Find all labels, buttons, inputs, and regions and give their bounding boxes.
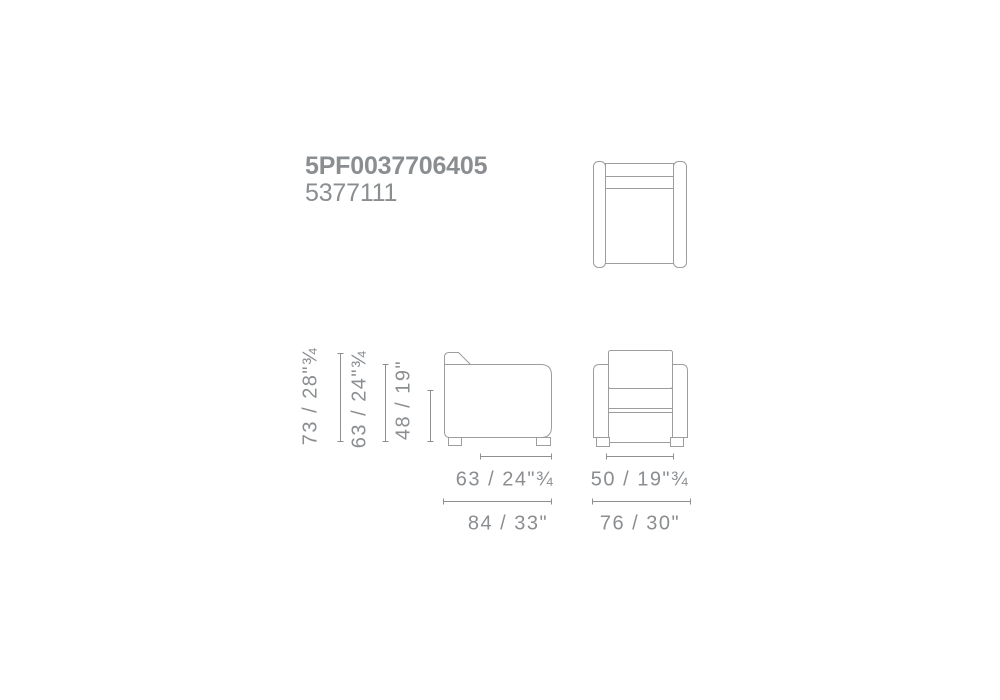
side-view-backrest xyxy=(445,353,471,367)
dim-line-arm-height xyxy=(383,365,389,442)
front-view-backrest xyxy=(609,351,673,389)
dim-label-total-width: 76 / 30" xyxy=(600,513,680,536)
top-view-left-armrest xyxy=(594,162,606,268)
top-view-right-armrest xyxy=(674,162,687,268)
front-view xyxy=(594,351,688,447)
dim-line-total-width xyxy=(593,499,691,505)
armchair-technical-drawing xyxy=(0,0,1000,700)
front-view-left-foot xyxy=(597,438,610,447)
front-view-base xyxy=(609,413,673,443)
front-view-seat xyxy=(609,389,673,409)
dim-line-seat-depth xyxy=(481,454,552,460)
top-view-body xyxy=(606,164,674,264)
top-view xyxy=(594,162,687,268)
front-view-left-armrest xyxy=(594,365,609,438)
dim-label-arm-height: 63 / 24"¾ xyxy=(349,350,372,448)
dim-line-seat-height xyxy=(428,391,434,442)
dim-line-seat-width xyxy=(607,454,674,460)
side-view-body xyxy=(445,365,552,438)
dim-label-seat-width: 50 / 19"¾ xyxy=(591,469,689,492)
dim-line-total-height xyxy=(338,354,344,442)
dim-label-total-height: 73 / 28"¾ xyxy=(300,347,323,445)
dim-line-total-depth xyxy=(444,499,552,505)
side-view xyxy=(445,353,552,446)
dim-label-seat-depth: 63 / 24"¾ xyxy=(456,469,554,492)
side-view-back-foot xyxy=(449,438,462,446)
dim-label-seat-height: 48 / 19" xyxy=(393,360,416,440)
front-view-right-armrest xyxy=(673,365,688,438)
dim-label-total-depth: 84 / 33" xyxy=(468,513,548,536)
front-view-right-foot xyxy=(671,438,684,447)
front-view-seat-band xyxy=(609,409,673,413)
side-view-front-foot xyxy=(537,438,551,446)
product-dimension-sheet: 5PF0037706405 5377111 xyxy=(0,0,1000,700)
